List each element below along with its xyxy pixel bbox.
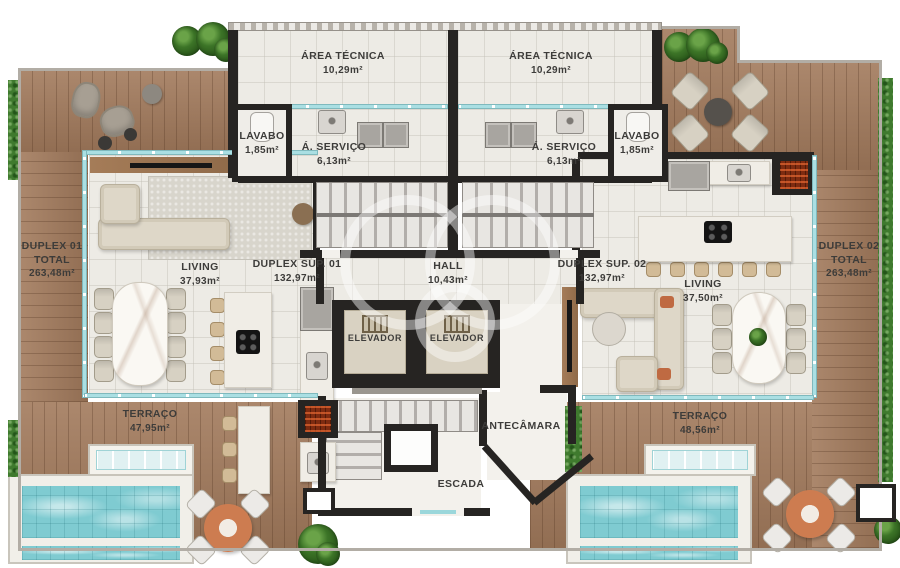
label-servico-2: Á. SERVIÇO 6,13m² bbox=[532, 141, 597, 168]
terrace1-niche bbox=[303, 488, 335, 514]
room-area: 37,50m² bbox=[683, 293, 723, 304]
unit-total: TOTAL bbox=[34, 254, 70, 266]
unit1-glass-south bbox=[84, 393, 318, 398]
unit1-stool bbox=[210, 298, 225, 313]
unit1-stool bbox=[210, 370, 225, 385]
elevator-door-icon-1 bbox=[362, 315, 388, 333]
parapet-top-left bbox=[18, 68, 234, 71]
label-living-1: LIVING 37,93m² bbox=[180, 261, 220, 288]
label-terraco-1: TERRAÇO 47,95m² bbox=[123, 408, 178, 435]
label-terraco-2: TERRAÇO 48,56m² bbox=[673, 410, 728, 437]
unit1-dining-chair bbox=[166, 312, 186, 334]
duplex-stair-2-rail bbox=[462, 213, 594, 217]
room-name: ESCADA bbox=[438, 478, 485, 490]
floor-plan: ÁREA TÉCNICA 10,29m² ÁREA TÉCNICA 10,29m… bbox=[0, 0, 900, 568]
room-name: ÁREA TÉCNICA bbox=[301, 50, 385, 62]
terrace1-bar-counter bbox=[238, 406, 270, 494]
spa-right-water bbox=[652, 450, 748, 470]
unit2-stool bbox=[670, 262, 685, 277]
unit1-sofa-chaise bbox=[100, 184, 140, 224]
pool-right bbox=[580, 486, 738, 538]
unit1-dining-chair bbox=[166, 336, 186, 358]
unit2-dining-chair bbox=[712, 304, 732, 326]
unit2-dining-chair bbox=[786, 304, 806, 326]
unit1-dining-chair bbox=[166, 288, 186, 310]
room-name: LIVING bbox=[684, 278, 721, 290]
unit1-dining-chair bbox=[94, 312, 114, 334]
pool-left bbox=[22, 486, 180, 538]
lounge-pouf-1 bbox=[98, 136, 112, 150]
exterior-wall-top bbox=[228, 22, 662, 31]
unit2-stool bbox=[742, 262, 757, 277]
label-escada: ESCADA bbox=[438, 478, 485, 492]
washer-2a bbox=[485, 122, 511, 148]
unit2-cooktop bbox=[704, 221, 732, 243]
parapet-left bbox=[18, 68, 21, 550]
door-hall-unit2 bbox=[560, 250, 578, 258]
unit2-stool bbox=[694, 262, 709, 277]
duplex-stair-1-rail bbox=[316, 213, 448, 217]
unit2-coffee-table bbox=[592, 312, 626, 346]
room-name: ELEVADOR bbox=[430, 333, 484, 343]
room-name: DUPLEX SUP. 02 bbox=[558, 258, 647, 270]
room-area: 48,56m² bbox=[680, 425, 720, 436]
lounge-pouf-2 bbox=[124, 128, 137, 141]
room-name: Á. SERVIÇO bbox=[302, 141, 367, 153]
unit2-stool bbox=[718, 262, 733, 277]
room-name: TERRAÇO bbox=[123, 408, 178, 420]
unit1-glass-west bbox=[82, 150, 87, 398]
label-servico-1: Á. SERVIÇO 6,13m² bbox=[302, 141, 367, 168]
washer-1b bbox=[383, 122, 409, 148]
label-hall: HALL 10,43m² bbox=[428, 260, 468, 287]
unit1-kitchen-sink bbox=[306, 352, 328, 380]
unit1-dining-chair bbox=[94, 360, 114, 382]
spa-left-water bbox=[96, 450, 186, 470]
room-area: 132,97m² bbox=[579, 273, 625, 284]
terrace2-round-table bbox=[786, 490, 834, 538]
terrace1-bar-stool bbox=[222, 416, 237, 431]
unit-area: 263,48m² bbox=[826, 268, 872, 279]
unit2-kitchen-sink bbox=[727, 164, 751, 182]
unit2-dining-chair bbox=[786, 352, 806, 374]
unit1-dining-chair bbox=[166, 360, 186, 382]
label-lavabo-1: LAVABO 1,85m² bbox=[239, 130, 284, 157]
unit1-stool bbox=[210, 322, 225, 337]
parapet-right bbox=[879, 60, 882, 550]
laundry-tub-2 bbox=[556, 110, 584, 134]
unit2-dining-chair bbox=[712, 328, 732, 350]
terrace1-grill bbox=[305, 406, 331, 432]
unit1-side-table bbox=[292, 203, 314, 225]
unit2-pillow-1 bbox=[660, 296, 674, 308]
label-duplex-total-2: DUPLEX 02 TOTAL 263,48m² bbox=[819, 240, 880, 281]
room-name: LAVABO bbox=[239, 130, 284, 142]
unit-area: 263,48m² bbox=[29, 268, 75, 279]
unit2-stool bbox=[646, 262, 661, 277]
terrace2-fire-table bbox=[856, 484, 896, 522]
label-antecamara: ANTECÂMARA bbox=[481, 420, 560, 434]
label-area-tecnica-2: ÁREA TÉCNICA 10,29m² bbox=[509, 50, 593, 77]
label-living-2: LIVING 37,50m² bbox=[683, 278, 723, 305]
room-name: ÁREA TÉCNICA bbox=[509, 50, 593, 62]
unit1-dining-table bbox=[112, 282, 168, 386]
room-area: 47,95m² bbox=[130, 423, 170, 434]
room-area: 10,29m² bbox=[323, 65, 363, 76]
unit-name: DUPLEX 02 bbox=[819, 240, 880, 252]
unit2-cabinet bbox=[668, 161, 710, 191]
elevator-sill bbox=[352, 388, 482, 394]
parapet-top-right-upper bbox=[660, 26, 740, 29]
wall-center-divider bbox=[448, 30, 458, 256]
room-name: HALL bbox=[433, 260, 463, 272]
label-duplex-sup-1: DUPLEX SUP. 01 132,97m² bbox=[253, 258, 342, 285]
room-area: 6,13m² bbox=[547, 156, 581, 167]
unit2-glass-south bbox=[582, 395, 814, 400]
unit1-cooktop bbox=[236, 330, 260, 354]
room-area: 132,97m² bbox=[274, 273, 320, 284]
terrace1-round-table bbox=[204, 504, 252, 552]
room-area: 37,93m² bbox=[180, 276, 220, 287]
unit2-grill bbox=[780, 161, 808, 189]
unit1-dining-chair bbox=[94, 288, 114, 310]
terrace1-bar-stool bbox=[222, 442, 237, 457]
unit2-table-centerpiece bbox=[749, 328, 767, 346]
unit1-dining-chair bbox=[94, 336, 114, 358]
unit-total: TOTAL bbox=[831, 254, 867, 266]
unit2-sofa-chaise bbox=[616, 356, 658, 392]
unit2-pillow-2 bbox=[657, 368, 671, 380]
deck-coffee-table bbox=[704, 98, 732, 126]
unit2-dining-chair bbox=[786, 328, 806, 350]
unit2-stool bbox=[766, 262, 781, 277]
room-name: Á. SERVIÇO bbox=[532, 141, 597, 153]
door-hall-unit1 bbox=[322, 250, 340, 258]
stair-core bbox=[384, 424, 438, 472]
label-lavabo-2: LAVABO 1,85m² bbox=[614, 130, 659, 157]
parapet-bottom bbox=[18, 548, 882, 551]
door-stair-south-glass bbox=[420, 510, 456, 514]
wall-hall-north bbox=[300, 250, 600, 258]
label-area-tecnica-1: ÁREA TÉCNICA 10,29m² bbox=[301, 50, 385, 77]
room-area: 10,29m² bbox=[531, 65, 571, 76]
wall-stair-east bbox=[479, 390, 487, 446]
room-name: ANTECÂMARA bbox=[481, 420, 560, 432]
unit-name: DUPLEX 01 bbox=[22, 240, 83, 252]
room-area: 6,13m² bbox=[317, 156, 351, 167]
wall-antecamara-east bbox=[568, 392, 576, 444]
room-area: 1,85m² bbox=[245, 145, 279, 156]
plant-bottom-center-2 bbox=[316, 542, 340, 566]
room-name: ELEVADOR bbox=[348, 333, 402, 343]
parapet-step bbox=[737, 26, 740, 62]
label-elevador-1: ELEVADOR bbox=[348, 333, 402, 345]
elevator-door-icon-2 bbox=[444, 315, 470, 333]
terrace1-bar-stool bbox=[222, 468, 237, 483]
room-area: 10,43m² bbox=[428, 275, 468, 286]
label-duplex-total-1: DUPLEX 01 TOTAL 263,48m² bbox=[22, 240, 83, 281]
unit2-dining-chair bbox=[712, 352, 732, 374]
unit2-tv bbox=[567, 300, 572, 372]
laundry-tub-1 bbox=[318, 110, 346, 134]
lounge-side-table bbox=[142, 84, 162, 104]
parapet-top-right bbox=[737, 60, 882, 63]
room-name: DUPLEX SUP. 01 bbox=[253, 258, 342, 270]
label-duplex-sup-2: DUPLEX SUP. 02 132,97m² bbox=[558, 258, 647, 285]
plant-top-right-3 bbox=[706, 42, 728, 64]
unit1-tv bbox=[130, 163, 212, 168]
room-name: TERRAÇO bbox=[673, 410, 728, 422]
wall-stair-south bbox=[318, 508, 490, 516]
unit1-stool bbox=[210, 346, 225, 361]
unit2-glass-east bbox=[812, 155, 817, 398]
room-name: LIVING bbox=[181, 261, 218, 273]
room-area: 1,85m² bbox=[620, 145, 654, 156]
room-name: LAVABO bbox=[614, 130, 659, 142]
label-elevador-2: ELEVADOR bbox=[430, 333, 484, 345]
